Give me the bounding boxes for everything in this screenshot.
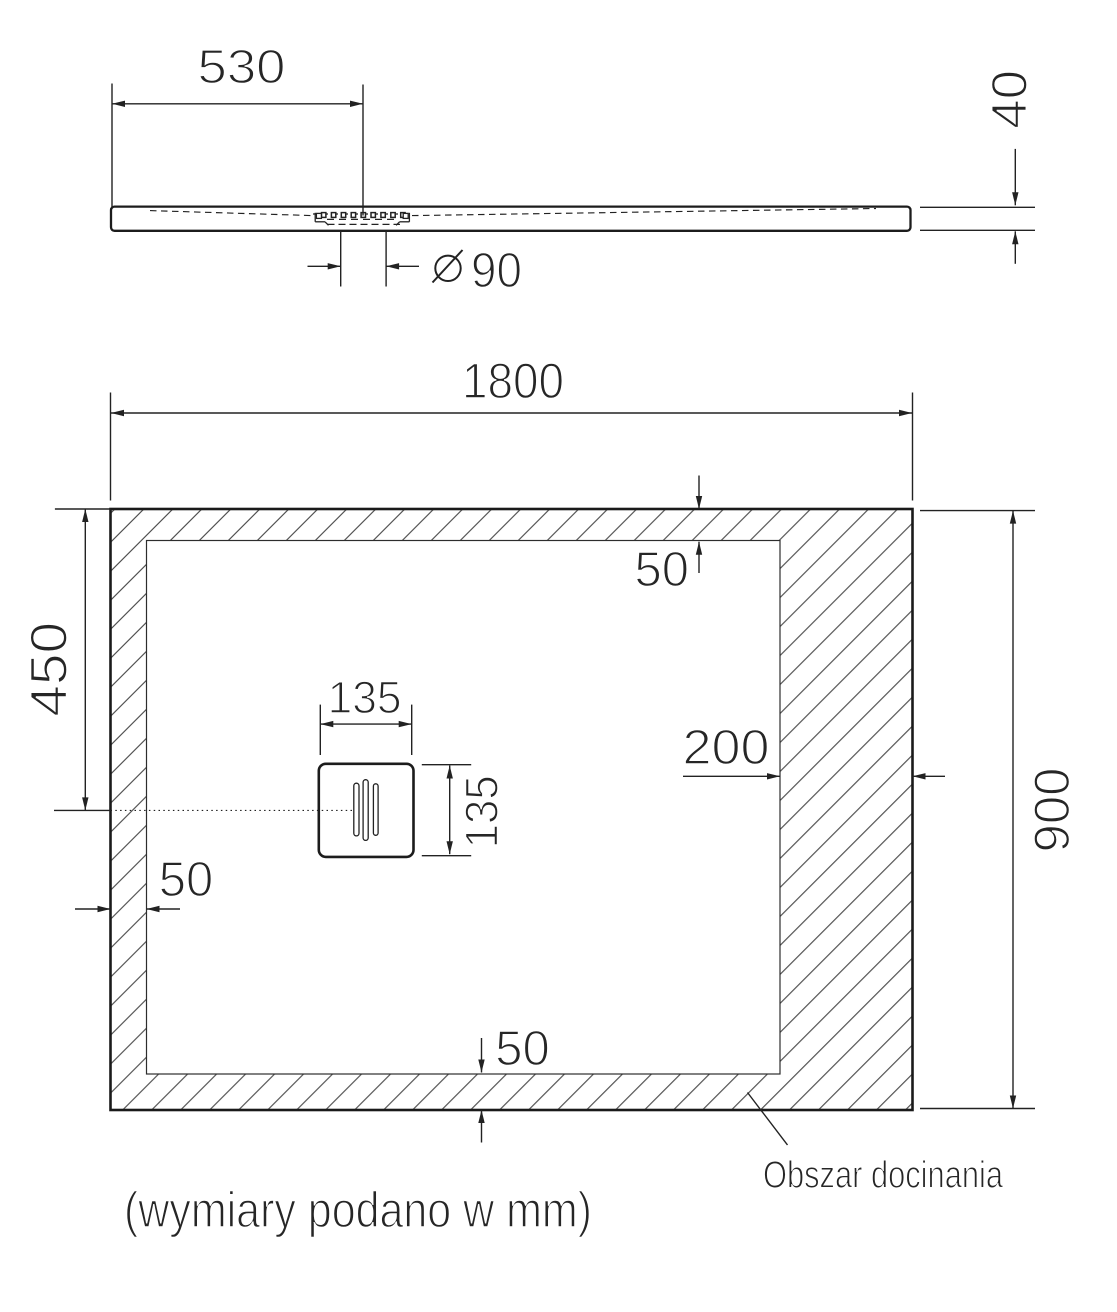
svg-text:50: 50	[159, 853, 214, 907]
svg-text:450: 450	[21, 622, 79, 717]
svg-text:90: 90	[471, 244, 522, 298]
svg-text:200: 200	[683, 721, 770, 775]
svg-text:40: 40	[982, 70, 1038, 129]
svg-text:900: 900	[1024, 768, 1080, 853]
svg-text:Obszar docinania: Obszar docinania	[763, 1155, 1004, 1197]
svg-text:530: 530	[198, 41, 286, 94]
svg-text:135: 135	[456, 775, 508, 848]
svg-text:50: 50	[634, 543, 689, 597]
svg-text:135: 135	[328, 672, 402, 723]
svg-text:50: 50	[495, 1022, 550, 1076]
svg-text:(wymiary podano w mm): (wymiary podano w mm)	[124, 1182, 592, 1238]
svg-text:1800: 1800	[462, 353, 564, 409]
